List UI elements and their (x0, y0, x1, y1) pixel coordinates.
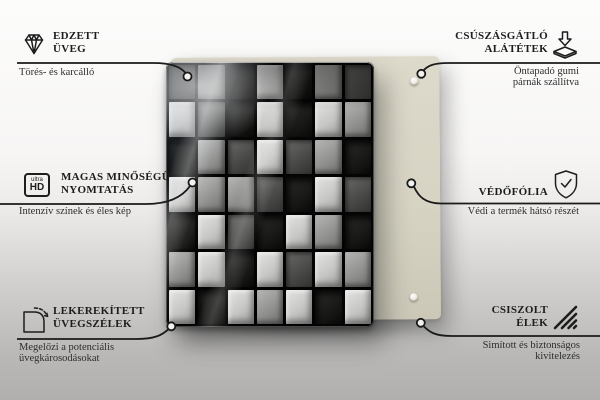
diamond-icon (20, 32, 48, 61)
screw-dot-bottom (410, 293, 418, 301)
cube-cell (169, 215, 195, 249)
cube-cell (315, 252, 341, 286)
cube-cell (198, 177, 224, 211)
callout-title-protective-film: VÉDŐFÓLIA (479, 186, 548, 199)
cube-pattern-print (166, 62, 374, 327)
cube-cell (315, 102, 341, 136)
cube-cell (228, 65, 254, 99)
cube-cell (257, 290, 283, 324)
cube-cell (228, 140, 254, 174)
cube-cell (228, 215, 254, 249)
cube-cell (315, 140, 341, 174)
polished-edges-icon (553, 304, 579, 335)
rounded-corner-icon (20, 306, 49, 339)
callout-title-anti-slip: CSÚSZÁSGÁTLÓ ALÁTÉTEK (455, 30, 548, 56)
product-glass-board (166, 62, 374, 327)
cube-cell (257, 140, 283, 174)
cube-cell (286, 215, 312, 249)
cube-cell (169, 290, 195, 324)
cube-cell (169, 65, 195, 99)
callout-title-print-quality: MAGAS MINŐSÉGŰ NYOMTATÁS (61, 171, 170, 197)
cube-cell (345, 140, 371, 174)
cube-cell (286, 65, 312, 99)
callout-subtitle-anti-slip: Öntapadó gumi párnák szállítva (513, 66, 579, 88)
cube-cell (286, 177, 312, 211)
cube-cell (345, 215, 371, 249)
cube-cell (198, 140, 224, 174)
cube-cell (198, 102, 224, 136)
screw-dot-top (410, 77, 418, 85)
cube-cell (169, 140, 195, 174)
cube-cell (228, 177, 254, 211)
cube-cell (228, 252, 254, 286)
cube-cell (345, 65, 371, 99)
cube-cell (345, 177, 371, 211)
cube-cell (315, 65, 341, 99)
callout-title-polished-edges: CSISZOLT ÉLEK (492, 304, 548, 330)
cube-cell (286, 252, 312, 286)
cube-cell (257, 215, 283, 249)
cube-cell (257, 252, 283, 286)
cube-cell (257, 102, 283, 136)
cube-cell (315, 177, 341, 211)
cube-cell (198, 290, 224, 324)
cube-cell (345, 252, 371, 286)
callout-subtitle-polished-edges: Simított és biztonságos kivitelezés (483, 340, 580, 362)
callout-subtitle-print-quality: Intenzív színek és éles kép (19, 206, 131, 217)
callout-subtitle-tempered-glass: Törés- és karcálló (19, 67, 94, 78)
cube-cell (286, 102, 312, 136)
callout-subtitle-rounded-edges: Megelőzi a potenciális üvegkárosodásokat (19, 342, 114, 364)
ultra-hd-icon: ultra HD (24, 173, 50, 197)
cube-cell (228, 102, 254, 136)
cube-cell (345, 102, 371, 136)
cube-cell (198, 65, 224, 99)
cube-cell (286, 140, 312, 174)
cube-cell (198, 252, 224, 286)
shield-check-icon (552, 169, 580, 205)
cube-cell (169, 252, 195, 286)
callout-subtitle-protective-film: Védi a termék hátsó részét (468, 206, 579, 217)
cube-cell (315, 290, 341, 324)
callout-title-rounded-edges: LEKEREKÍTETT ÜVEGSZÉLEK (53, 305, 145, 331)
cube-cell (169, 102, 195, 136)
cube-cell (198, 215, 224, 249)
callout-title-tempered-glass: EDZETT ÜVEG (53, 30, 99, 56)
cube-cell (257, 65, 283, 99)
cube-cell (286, 290, 312, 324)
anti-slip-pads-icon (551, 30, 579, 65)
cube-cell (257, 177, 283, 211)
cube-cell (315, 215, 341, 249)
cube-cell (228, 290, 254, 324)
cube-cell (345, 290, 371, 324)
product-feature-infographic: EDZETT ÜVEG Törés- és karcálló CSÚSZÁSGÁ… (0, 0, 600, 400)
cube-cell (169, 177, 195, 211)
